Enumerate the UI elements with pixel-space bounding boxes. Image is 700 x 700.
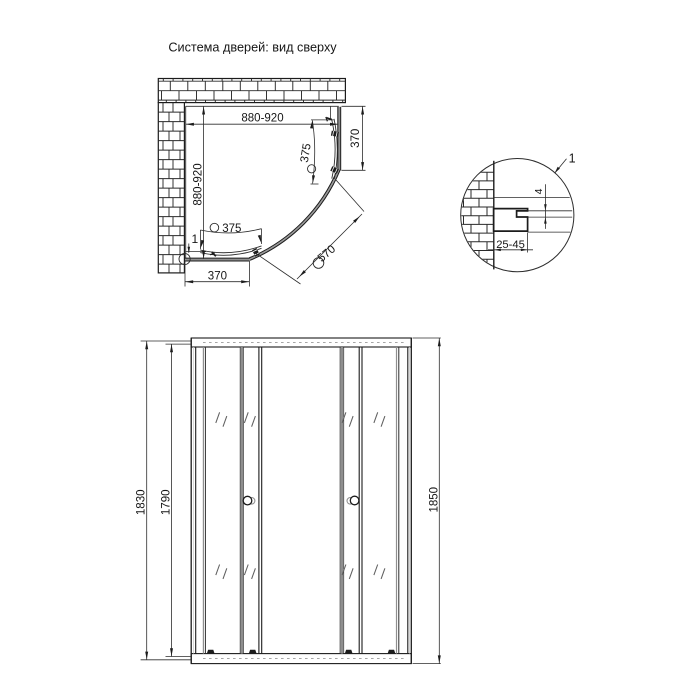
svg-text:1: 1	[569, 152, 576, 166]
svg-text:Система дверей: вид сверху: Система дверей: вид сверху	[168, 41, 337, 55]
svg-text:370: 370	[350, 129, 362, 148]
svg-text:1850: 1850	[429, 487, 441, 513]
svg-text:880-920: 880-920	[241, 113, 283, 125]
svg-text:1: 1	[192, 232, 199, 246]
svg-text:370: 370	[208, 270, 227, 282]
svg-text:880-920: 880-920	[192, 163, 204, 205]
svg-text:1790: 1790	[160, 490, 172, 516]
svg-text:4: 4	[533, 188, 545, 194]
svg-text:1830: 1830	[136, 490, 148, 516]
svg-text:375: 375	[222, 223, 241, 235]
svg-text:25-45: 25-45	[496, 239, 525, 251]
